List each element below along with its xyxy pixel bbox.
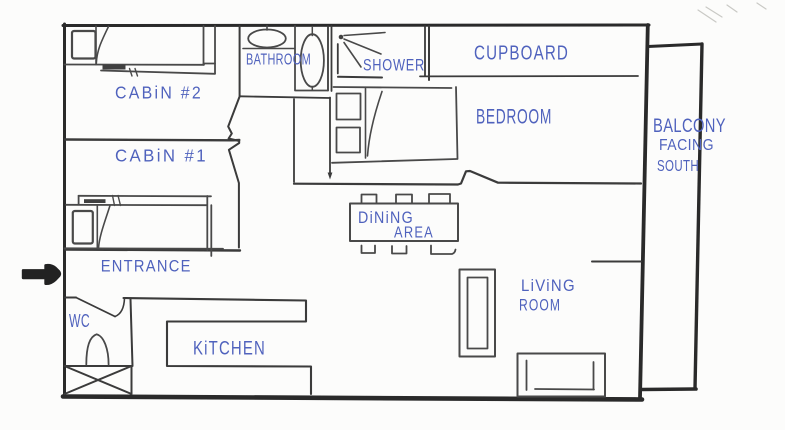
svg-text:BEDROOM: BEDROOM	[476, 106, 552, 129]
svg-text:CUPBOARD: CUPBOARD	[474, 43, 569, 65]
svg-text:LiViNG: LiViNG	[521, 276, 576, 295]
svg-text:WC: WC	[69, 310, 90, 331]
svg-text:ENTRANCE: ENTRANCE	[101, 257, 192, 276]
svg-text:AREA: AREA	[394, 225, 434, 242]
svg-text:FACING: FACING	[659, 137, 714, 154]
svg-text:BATHROOM: BATHROOM	[246, 52, 311, 69]
svg-text:CABiN #2: CABiN #2	[115, 83, 203, 103]
svg-text:ROOM: ROOM	[519, 296, 561, 315]
svg-text:SHOWER: SHOWER	[363, 56, 425, 75]
svg-text:CABiN #1: CABiN #1	[115, 146, 208, 166]
svg-text:BALCONY: BALCONY	[653, 116, 726, 137]
svg-text:KiTCHEN: KiTCHEN	[193, 339, 266, 360]
svg-text:SOUTH: SOUTH	[657, 158, 699, 175]
